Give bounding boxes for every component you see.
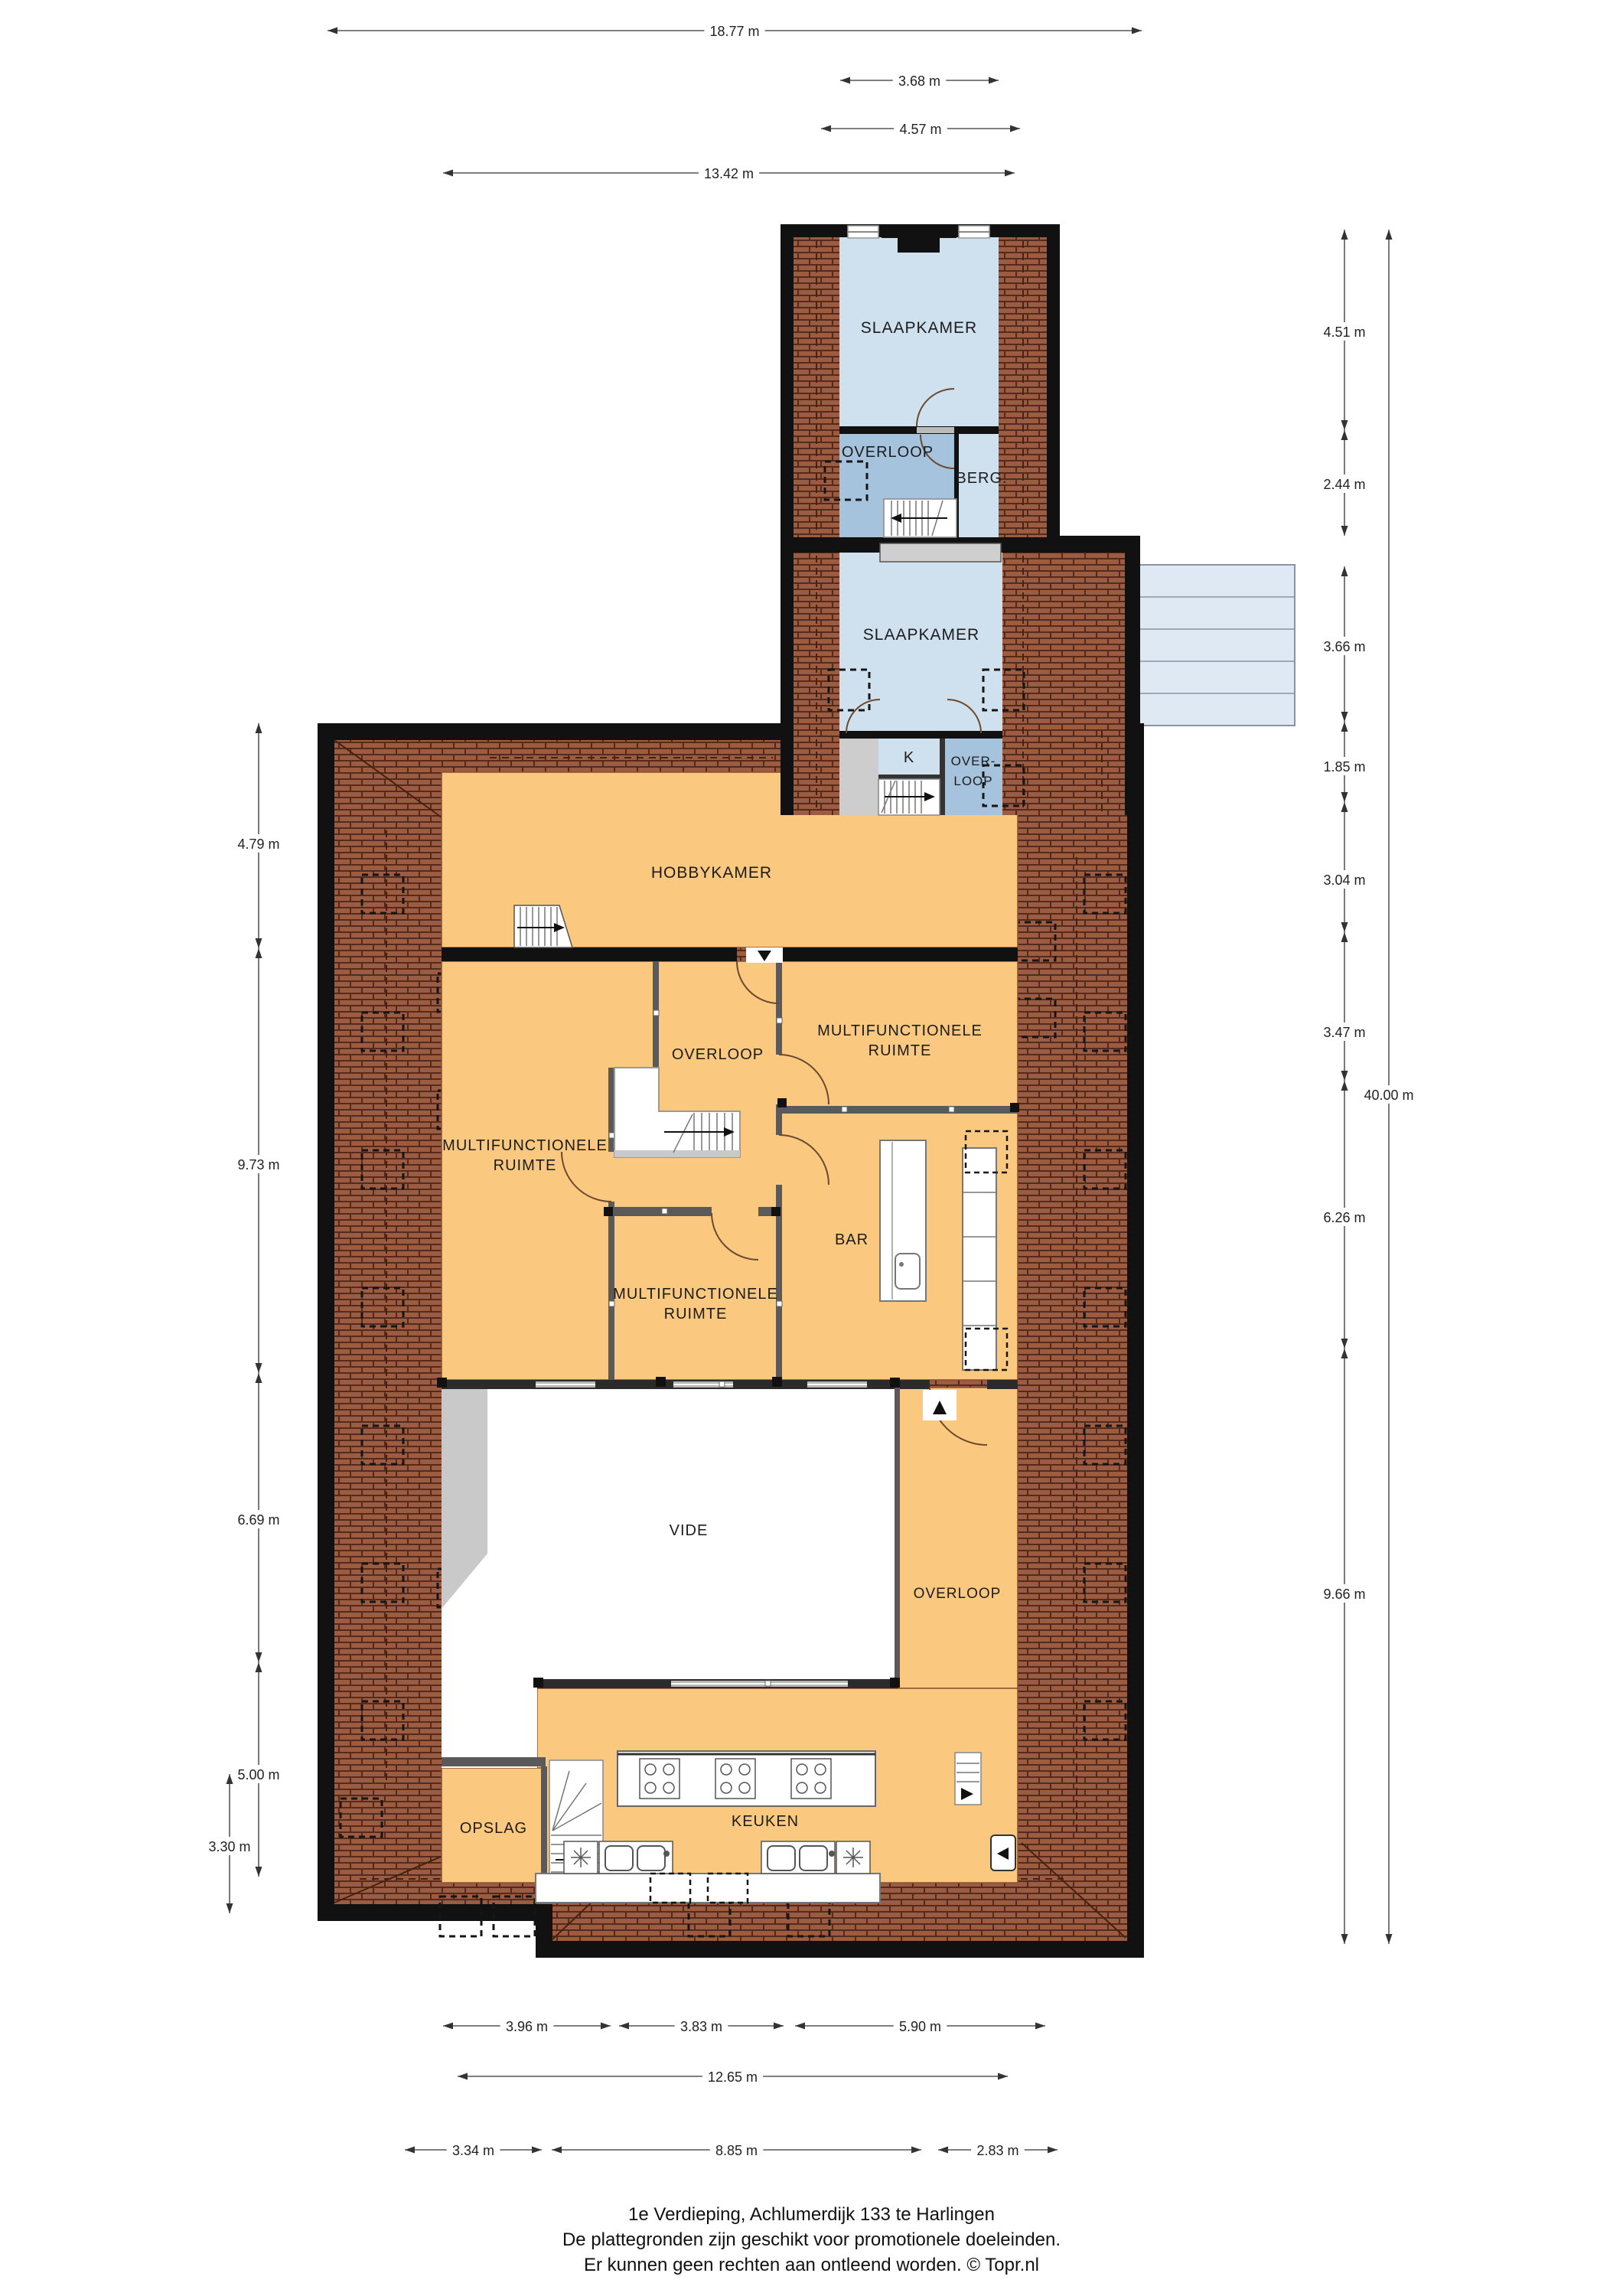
dimension-label: 3.66 m — [1323, 639, 1365, 654]
dimension-label: 1.85 m — [1323, 759, 1365, 775]
dimension-label: 13.42 m — [704, 166, 754, 181]
chimney — [882, 224, 957, 238]
stairs-tower-1 — [884, 499, 957, 537]
dimension-label: 6.69 m — [237, 1512, 279, 1528]
dimension-label: 2.83 m — [976, 2143, 1018, 2158]
dimension-label: 5.90 m — [899, 2019, 941, 2034]
dimension-label: 3.47 m — [1323, 1025, 1365, 1040]
dimension-label: 3.34 m — [452, 2143, 494, 2158]
dimension-label: 3.83 m — [680, 2019, 722, 2034]
dimension-label: 3.68 m — [898, 73, 940, 89]
plan-footer: 1e Verdieping, Achlumerdijk 133 te Harli… — [276, 2204, 1348, 2280]
main-building — [318, 723, 1144, 1958]
bar-counter — [880, 1140, 926, 1301]
room-label-berg: BERG. — [956, 470, 1007, 487]
dimension-label: 8.85 m — [715, 2143, 758, 2158]
room-label-bar: BAR — [835, 1231, 869, 1248]
dimension-label: 2.44 m — [1323, 477, 1365, 492]
floorplan-page: { "plan": { "floor_title": "1e Verdiepin… — [0, 0, 1623, 2296]
dimension-label: 3.04 m — [1323, 872, 1365, 888]
room-label-hobbykamer: HOBBYKAMER — [651, 864, 772, 882]
dimension-label: 9.73 m — [237, 1157, 279, 1172]
dimension-label: 4.57 m — [899, 122, 941, 137]
dimension-label: 9.66 m — [1323, 1587, 1365, 1602]
tower-1 — [781, 224, 1060, 553]
stairs-tower-2 — [878, 779, 940, 815]
dimension-label: 5.00 m — [237, 1767, 279, 1782]
roof-terrace — [1139, 565, 1295, 726]
kitchen-island — [618, 1751, 875, 1806]
dimension-label: 12.65 m — [708, 2069, 758, 2085]
dimension-label: 4.51 m — [1323, 325, 1365, 340]
floorplan-canvas: SLAAPKAMEROVERLOOPBERG.SLAAPKAMERKOVER-L… — [0, 0, 1623, 2296]
dimension-label: 3.30 m — [208, 1839, 250, 1854]
dimension-label: 6.26 m — [1323, 1210, 1365, 1225]
room-label-overloop-4: OVERLOOP — [914, 1586, 1002, 1602]
room-label-slaapkamer-2: SLAAPKAMER — [863, 626, 979, 644]
room-label-opslag: OPSLAG — [460, 1820, 527, 1837]
dimension-label: 4.79 m — [237, 837, 279, 852]
chimney — [898, 238, 940, 253]
dimension-label: 3.96 m — [506, 2019, 548, 2034]
room-label-overloop-3: OVERLOOP — [672, 1046, 764, 1063]
plan-disclaimer-1: De plattegronden zijn geschikt voor prom… — [276, 2229, 1348, 2251]
inter-tower-window — [880, 543, 1001, 562]
room-label-overloop-1: OVERLOOP — [842, 444, 934, 461]
room-label-keuken: KEUKEN — [732, 1813, 799, 1830]
stairs-corridor-step — [955, 1753, 981, 1805]
room-label-kast: K — [904, 749, 914, 766]
tap-icon — [829, 1851, 835, 1857]
plan-title: 1e Verdieping, Achlumerdijk 133 te Harli… — [276, 2204, 1348, 2226]
tap-icon — [663, 1851, 670, 1857]
room-label-slaapkamer-1: SLAAPKAMER — [861, 319, 977, 337]
side-door — [991, 1835, 1015, 1870]
dimension-label: 18.77 m — [709, 24, 759, 39]
room-label-vide: VIDE — [670, 1522, 709, 1539]
dimension-label: 40.00 m — [1364, 1088, 1413, 1103]
plan-disclaimer-2: Er kunnen geen rechten aan ontleend word… — [276, 2255, 1348, 2276]
